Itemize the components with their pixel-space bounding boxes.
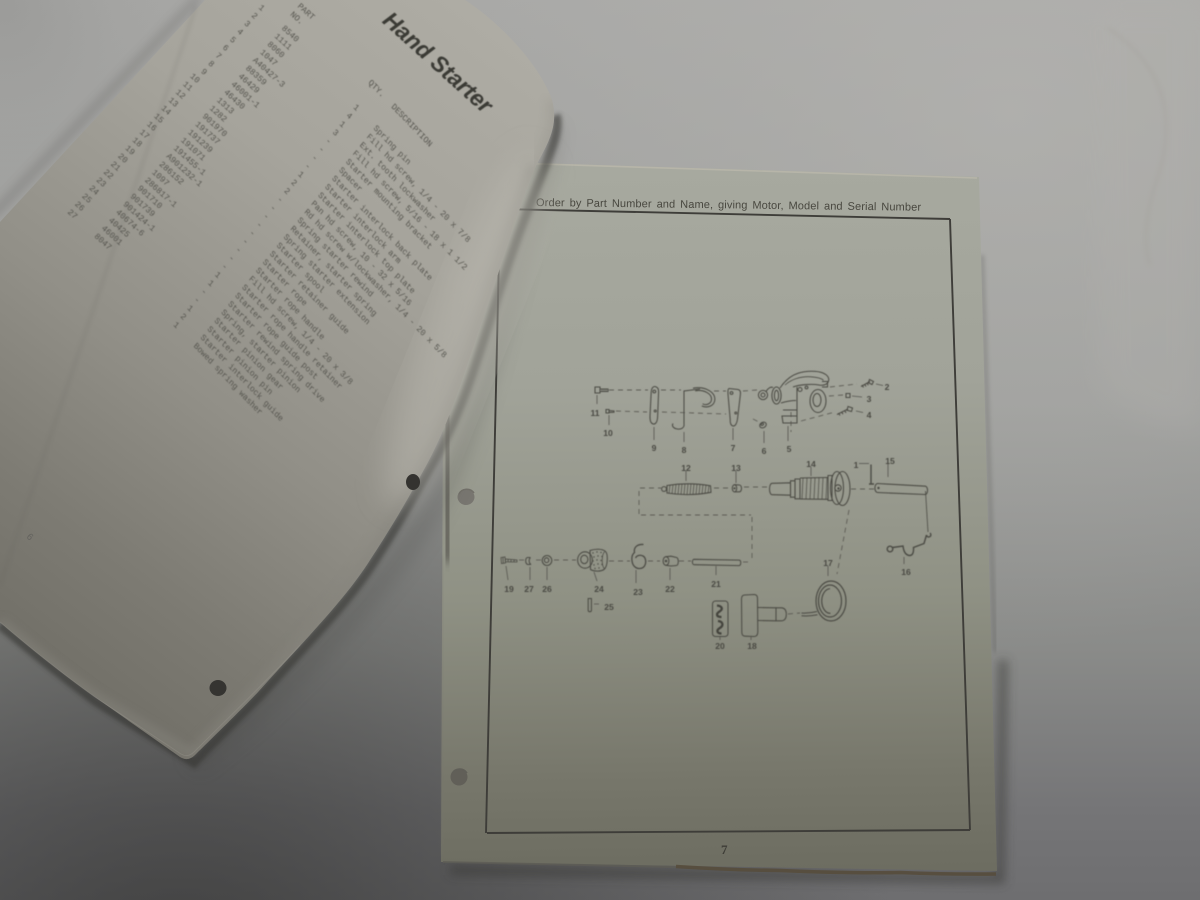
svg-text:7: 7: [731, 443, 736, 453]
svg-text:25: 25: [604, 602, 614, 612]
svg-text:10: 10: [603, 428, 613, 438]
svg-text:3: 3: [867, 394, 872, 404]
svg-text:15: 15: [885, 456, 895, 466]
svg-text:6: 6: [762, 446, 767, 456]
svg-text:14: 14: [806, 459, 816, 469]
svg-text:11: 11: [590, 408, 599, 418]
svg-text:18: 18: [747, 641, 757, 651]
svg-text:2: 2: [885, 382, 890, 392]
svg-text:13: 13: [731, 463, 741, 473]
svg-text:19: 19: [504, 584, 514, 594]
svg-text:21: 21: [711, 579, 721, 589]
svg-text:27: 27: [524, 584, 534, 594]
svg-text:16: 16: [901, 567, 911, 577]
svg-text:9: 9: [652, 443, 657, 453]
svg-text:20: 20: [715, 641, 725, 651]
svg-text:8: 8: [682, 445, 687, 455]
svg-text:7: 7: [721, 842, 728, 857]
svg-text:17: 17: [823, 558, 833, 568]
svg-text:26: 26: [542, 584, 552, 594]
svg-text:12: 12: [681, 463, 691, 473]
svg-text:24: 24: [594, 584, 604, 594]
svg-text:22: 22: [665, 584, 675, 594]
svg-text:1: 1: [854, 460, 859, 470]
svg-text:4: 4: [867, 410, 872, 420]
svg-text:5: 5: [787, 444, 792, 454]
svg-text:23: 23: [633, 587, 643, 597]
